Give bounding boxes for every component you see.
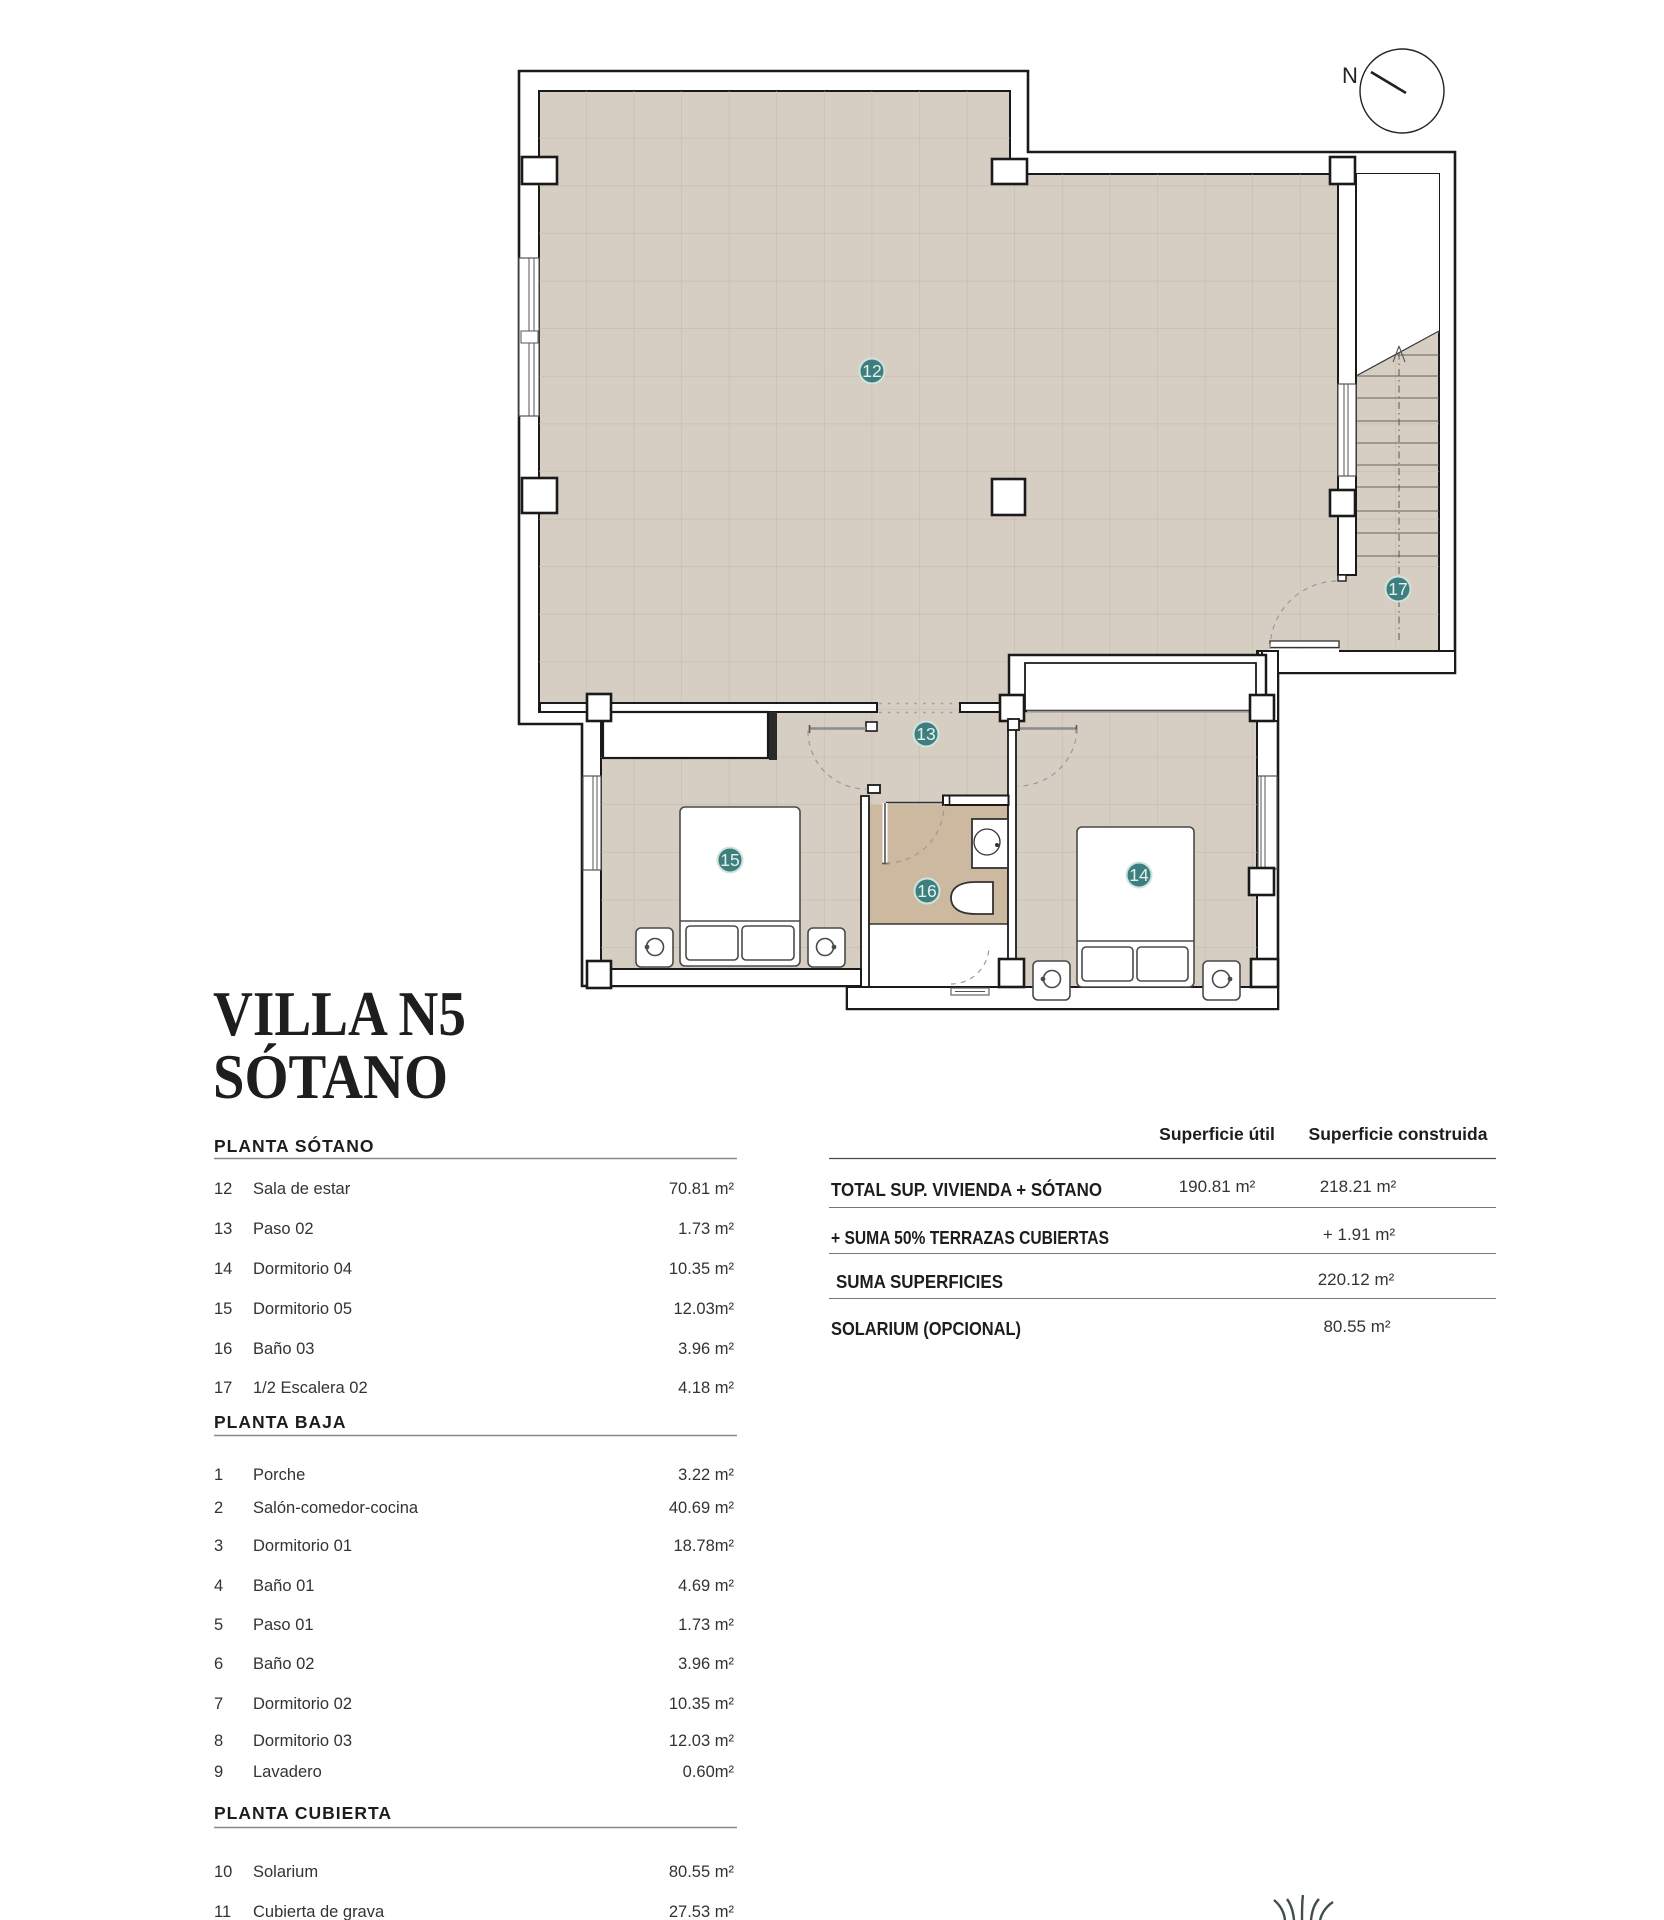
svg-text:PLANTA BAJA: PLANTA BAJA [214,1412,347,1432]
svg-text:Dormitorio 05: Dormitorio 05 [253,1300,352,1318]
svg-text:1.73 m²: 1.73 m² [678,1220,734,1238]
svg-text:Solarium: Solarium [253,1863,318,1881]
svg-text:SOLARIUM (OPCIONAL): SOLARIUM (OPCIONAL) [831,1319,1021,1339]
svg-text:15: 15 [214,1300,232,1318]
svg-text:+ SUMA 50% TERRAZAS CUBIERTAS: + SUMA 50% TERRAZAS CUBIERTAS [831,1228,1109,1248]
svg-text:4.18 m²: 4.18 m² [678,1379,734,1397]
svg-text:Cubierta de grava: Cubierta de grava [253,1903,385,1920]
svg-text:Dormitorio 04: Dormitorio 04 [253,1260,352,1278]
svg-text:27.53 m²: 27.53 m² [669,1903,735,1920]
svg-text:1/2 Escalera 02: 1/2 Escalera 02 [253,1379,368,1397]
svg-text:218.21 m²: 218.21 m² [1320,1177,1397,1196]
svg-text:Porche: Porche [253,1466,305,1484]
svg-text:16: 16 [917,881,936,901]
svg-text:6: 6 [214,1655,223,1673]
svg-text:+ 1.91 m²: + 1.91 m² [1323,1225,1396,1244]
svg-text:3: 3 [214,1537,223,1555]
svg-text:TOTAL SUP. VIVIENDA + SÓTANO: TOTAL SUP. VIVIENDA + SÓTANO [831,1179,1102,1200]
svg-text:N: N [1342,63,1358,88]
svg-text:3.96 m²: 3.96 m² [678,1340,734,1358]
svg-text:Dormitorio 01: Dormitorio 01 [253,1537,352,1555]
svg-text:14: 14 [1129,865,1149,885]
svg-text:15: 15 [720,850,739,870]
svg-text:7: 7 [214,1695,223,1713]
svg-text:Paso 01: Paso 01 [253,1616,314,1634]
svg-text:190.81 m²: 190.81 m² [1179,1177,1256,1196]
svg-text:Lavadero: Lavadero [253,1763,322,1781]
svg-text:70.81 m²: 70.81 m² [669,1180,735,1198]
svg-text:17: 17 [1388,579,1407,599]
svg-text:Sala de estar: Sala de estar [253,1180,351,1198]
svg-text:0.60m²: 0.60m² [683,1763,735,1781]
svg-text:Superficie construida: Superficie construida [1309,1124,1488,1144]
svg-text:Superficie útil: Superficie útil [1159,1124,1275,1144]
svg-text:3.22 m²: 3.22 m² [678,1466,734,1484]
svg-text:Dormitorio 03: Dormitorio 03 [253,1732,352,1750]
svg-text:4: 4 [214,1577,223,1595]
svg-text:220.12 m²: 220.12 m² [1318,1270,1395,1289]
svg-text:14: 14 [214,1260,232,1278]
svg-text:12: 12 [214,1180,232,1198]
svg-text:2: 2 [214,1499,223,1517]
svg-text:10: 10 [214,1863,232,1881]
svg-text:17: 17 [214,1379,232,1397]
svg-text:PLANTA SÓTANO: PLANTA SÓTANO [214,1135,374,1156]
svg-text:80.55 m²: 80.55 m² [1323,1317,1390,1336]
svg-text:13: 13 [214,1220,232,1238]
svg-text:SUMA SUPERFICIES: SUMA SUPERFICIES [836,1272,1003,1292]
svg-text:10.35 m²: 10.35 m² [669,1695,735,1713]
svg-text:12.03 m²: 12.03 m² [669,1732,735,1750]
svg-text:8: 8 [214,1732,223,1750]
svg-text:4.69 m²: 4.69 m² [678,1577,734,1595]
svg-text:3.96 m²: 3.96 m² [678,1655,734,1673]
svg-text:10.35 m²: 10.35 m² [669,1260,735,1278]
svg-text:16: 16 [214,1340,232,1358]
svg-text:13: 13 [916,724,935,744]
svg-text:40.69 m²: 40.69 m² [669,1499,735,1517]
svg-text:Paso 02: Paso 02 [253,1220,314,1238]
svg-text:Baño 03: Baño 03 [253,1340,314,1358]
svg-text:Baño 01: Baño 01 [253,1577,314,1595]
svg-text:1: 1 [214,1466,223,1484]
svg-text:Baño 02: Baño 02 [253,1655,314,1673]
svg-text:SÓTANO: SÓTANO [213,1041,448,1112]
svg-text:12.03m²: 12.03m² [673,1300,734,1318]
svg-text:9: 9 [214,1763,223,1781]
svg-text:PLANTA CUBIERTA: PLANTA CUBIERTA [214,1803,392,1823]
svg-text:18.78m²: 18.78m² [673,1537,734,1555]
svg-text:Salón-comedor-cocina: Salón-comedor-cocina [253,1499,419,1517]
svg-text:Dormitorio 02: Dormitorio 02 [253,1695,352,1713]
svg-text:80.55 m²: 80.55 m² [669,1863,735,1881]
svg-text:12: 12 [862,361,881,381]
svg-text:VILLA N5: VILLA N5 [213,978,466,1049]
svg-text:11: 11 [214,1903,231,1920]
svg-text:1.73 m²: 1.73 m² [678,1616,734,1634]
svg-text:5: 5 [214,1616,223,1634]
